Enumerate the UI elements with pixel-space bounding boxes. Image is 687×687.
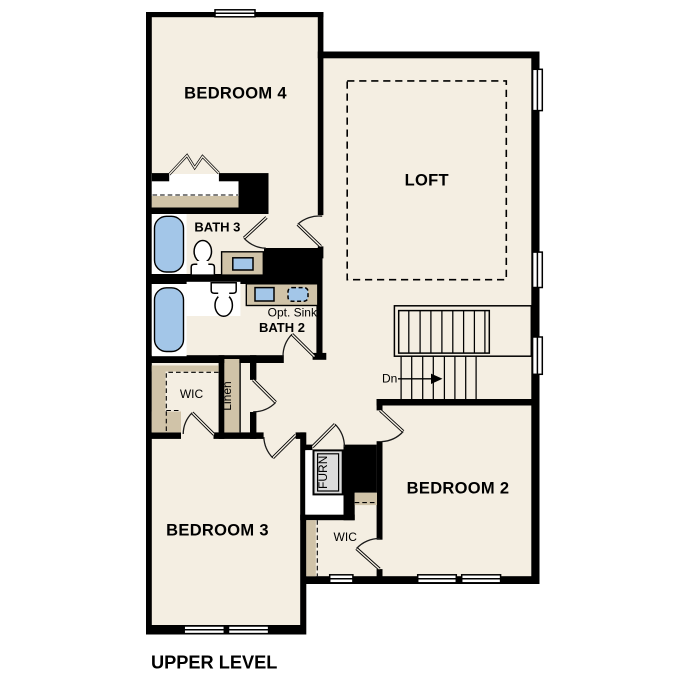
svg-text:LOFT: LOFT xyxy=(405,172,449,190)
svg-text:BEDROOM 4: BEDROOM 4 xyxy=(184,85,287,103)
svg-text:Linen: Linen xyxy=(220,381,234,410)
svg-text:UPPER LEVEL: UPPER LEVEL xyxy=(151,652,277,672)
svg-text:Dn: Dn xyxy=(382,372,397,386)
svg-text:FURN: FURN xyxy=(316,456,330,489)
svg-text:WIC: WIC xyxy=(180,387,204,401)
svg-text:BEDROOM 2: BEDROOM 2 xyxy=(407,480,510,498)
svg-text:BATH 3: BATH 3 xyxy=(194,220,240,235)
svg-text:Opt. Sink: Opt. Sink xyxy=(268,306,318,320)
svg-text:BEDROOM 3: BEDROOM 3 xyxy=(166,521,269,539)
svg-text:WIC: WIC xyxy=(334,530,358,544)
svg-text:BATH 2: BATH 2 xyxy=(259,320,305,335)
